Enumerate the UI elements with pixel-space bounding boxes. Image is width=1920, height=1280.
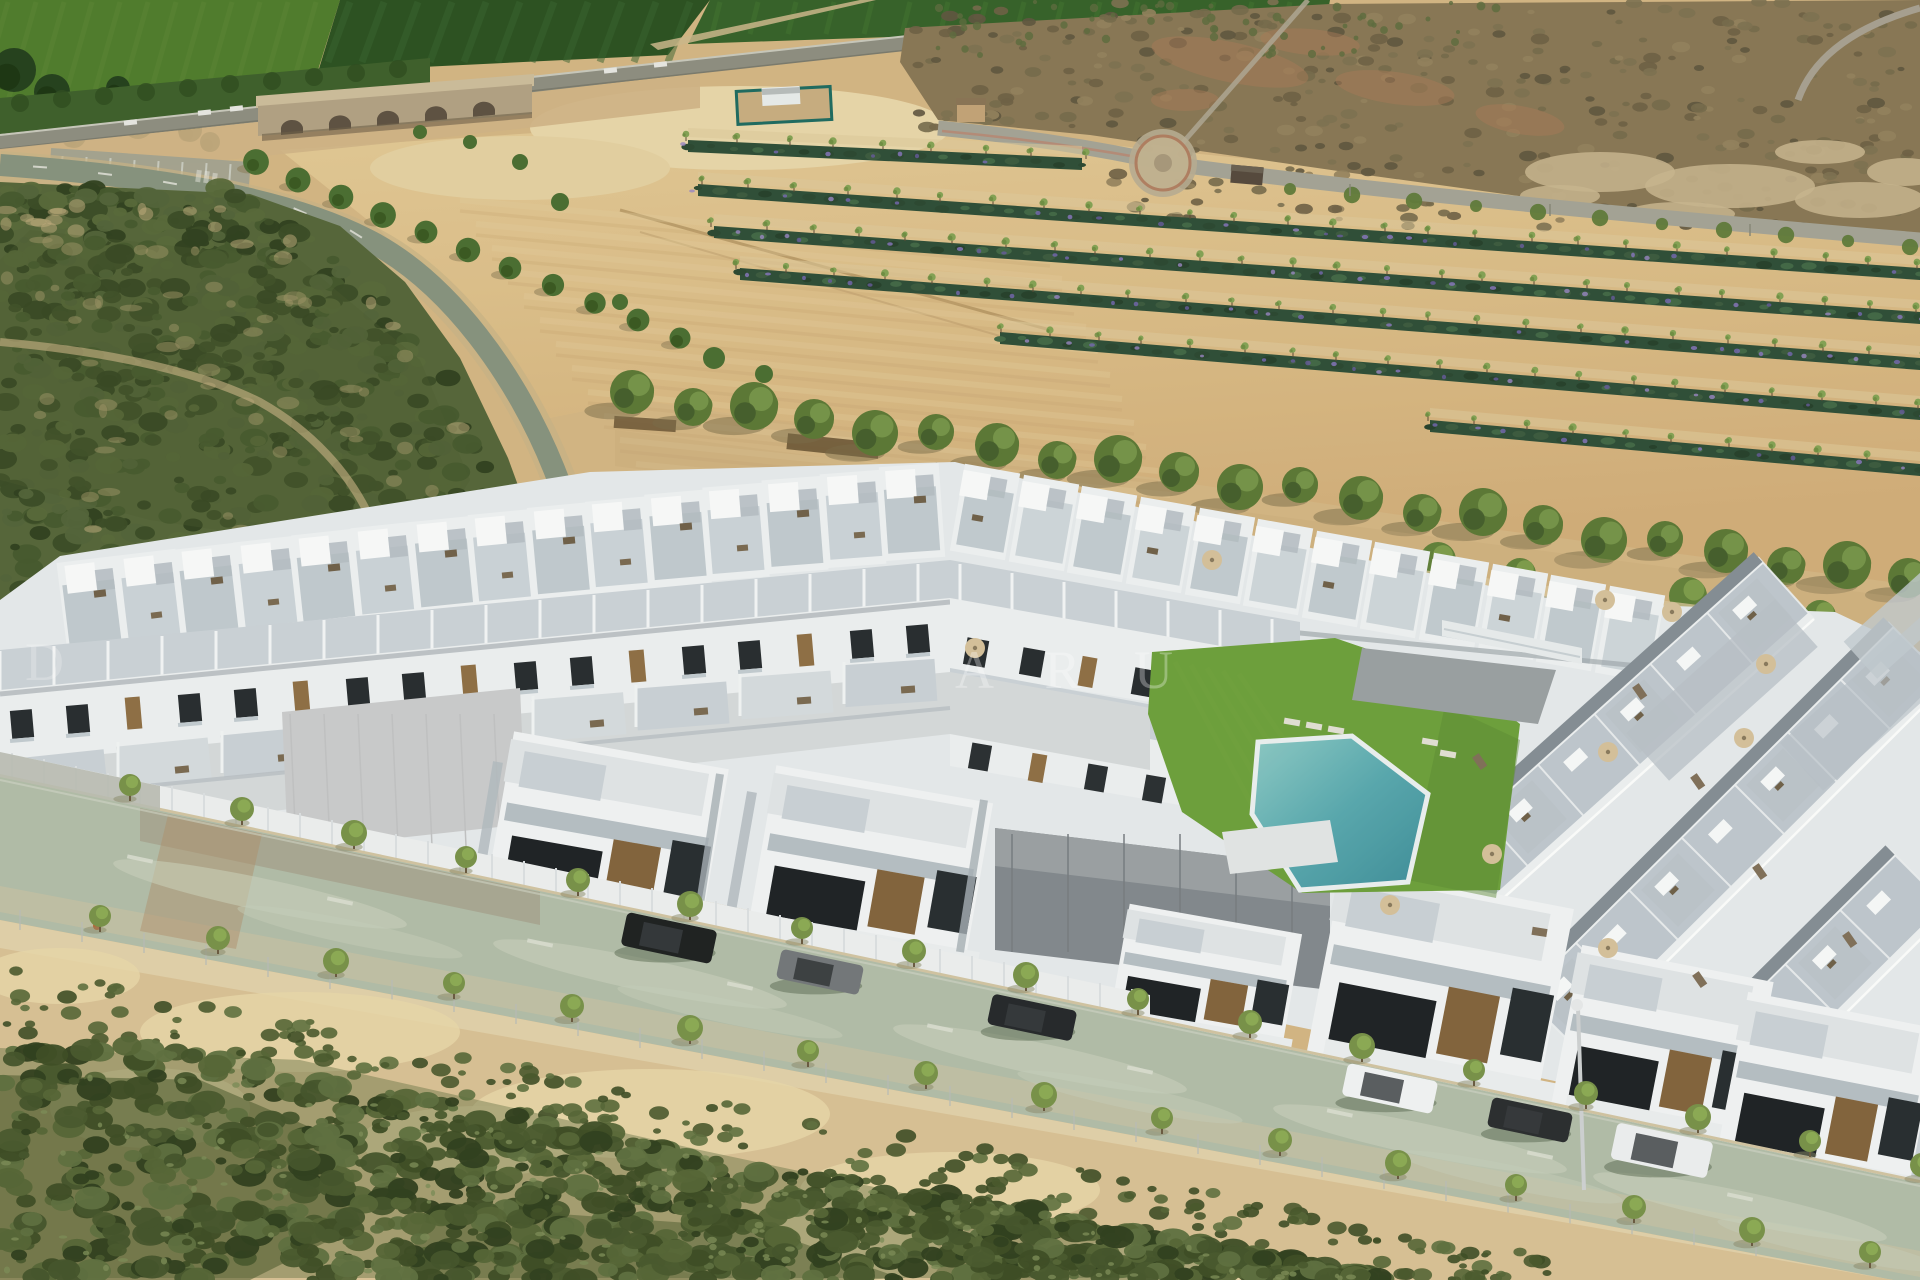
svg-text:A R U: A R U bbox=[955, 640, 1193, 700]
svg-text:D: D bbox=[25, 632, 64, 692]
